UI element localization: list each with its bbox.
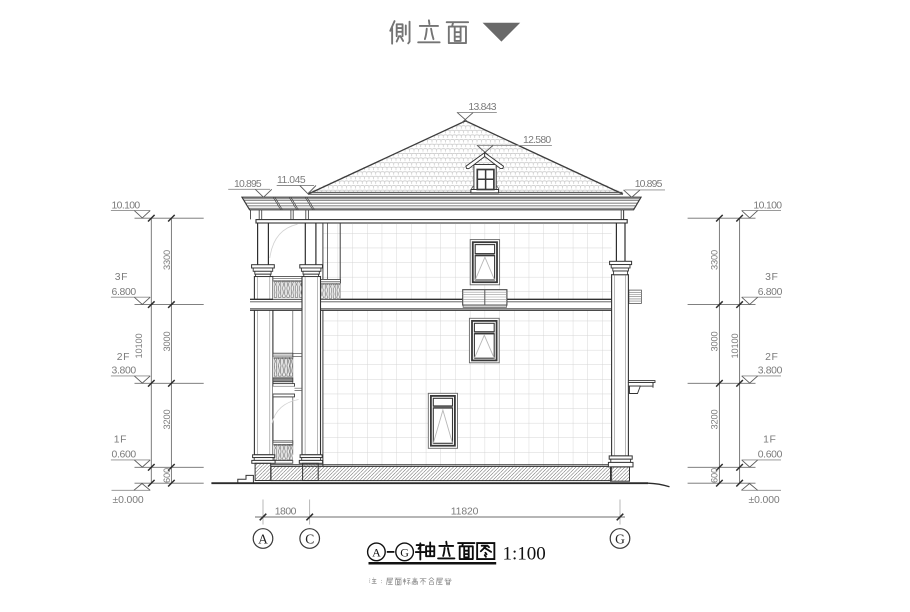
svg-text:3000: 3000 bbox=[710, 332, 720, 352]
svg-text:12.580: 12.580 bbox=[523, 135, 551, 146]
svg-text:3200: 3200 bbox=[710, 410, 720, 430]
svg-text:3300: 3300 bbox=[710, 250, 720, 270]
svg-text:600: 600 bbox=[710, 468, 720, 483]
svg-text:0.600: 0.600 bbox=[112, 450, 137, 461]
svg-text:600: 600 bbox=[162, 468, 172, 483]
svg-text:1:100: 1:100 bbox=[503, 543, 546, 564]
svg-text:2F: 2F bbox=[765, 352, 778, 363]
svg-text:0.600: 0.600 bbox=[758, 450, 783, 461]
svg-text:G: G bbox=[400, 545, 409, 559]
svg-text:10100: 10100 bbox=[134, 334, 144, 359]
svg-text:6.800: 6.800 bbox=[758, 287, 783, 298]
svg-text:±0.000: ±0.000 bbox=[749, 495, 780, 506]
svg-text:10.100: 10.100 bbox=[753, 200, 782, 211]
svg-text:3F: 3F bbox=[115, 272, 128, 283]
svg-text:G: G bbox=[615, 531, 625, 546]
svg-text:A: A bbox=[258, 531, 268, 546]
svg-text:10.895: 10.895 bbox=[234, 179, 262, 190]
svg-text:3F: 3F bbox=[765, 272, 778, 283]
svg-text:1800: 1800 bbox=[275, 506, 297, 517]
svg-text:11820: 11820 bbox=[451, 506, 479, 517]
svg-text:A: A bbox=[372, 545, 381, 559]
svg-text:10100: 10100 bbox=[730, 334, 740, 359]
svg-text:6.800: 6.800 bbox=[112, 287, 137, 298]
svg-text:10.895: 10.895 bbox=[635, 179, 663, 190]
svg-text:C: C bbox=[305, 531, 314, 546]
svg-text:2F: 2F bbox=[117, 352, 130, 363]
svg-text:10.100: 10.100 bbox=[112, 200, 141, 211]
svg-text:3000: 3000 bbox=[162, 332, 172, 352]
svg-text:3300: 3300 bbox=[162, 250, 172, 270]
svg-text:±0.000: ±0.000 bbox=[113, 495, 144, 506]
svg-text:3.800: 3.800 bbox=[758, 366, 783, 377]
svg-text:3200: 3200 bbox=[162, 410, 172, 430]
svg-text:11.045: 11.045 bbox=[277, 175, 306, 186]
svg-text:13.843: 13.843 bbox=[468, 102, 496, 113]
svg-text:1F: 1F bbox=[114, 434, 127, 445]
svg-text:3.800: 3.800 bbox=[112, 366, 137, 377]
svg-text:1F: 1F bbox=[763, 434, 776, 445]
